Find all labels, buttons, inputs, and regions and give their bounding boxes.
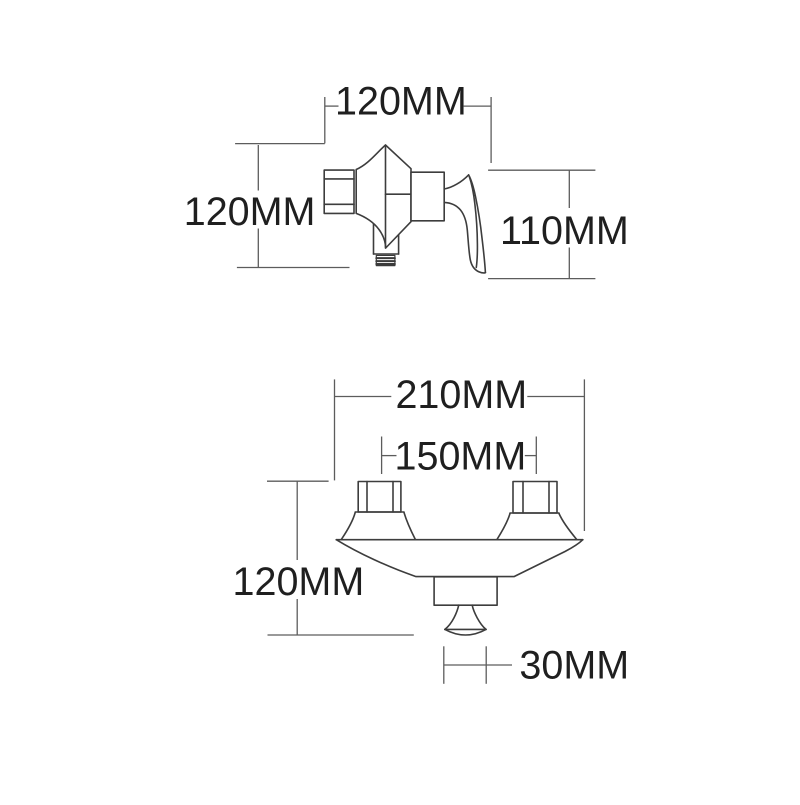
svg-text:120MM: 120MM	[335, 80, 467, 124]
svg-text:120MM: 120MM	[184, 190, 316, 234]
svg-text:110MM: 110MM	[500, 209, 629, 253]
svg-text:210MM: 210MM	[395, 373, 527, 417]
svg-text:150MM: 150MM	[395, 434, 527, 478]
svg-text:30MM: 30MM	[519, 644, 629, 688]
svg-text:120MM: 120MM	[233, 560, 365, 604]
